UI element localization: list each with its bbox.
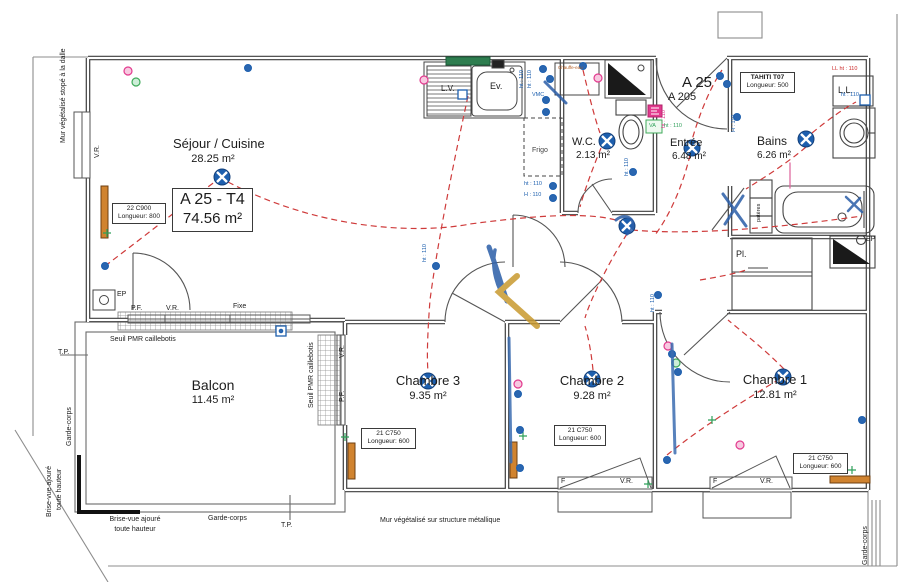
radiator-box-sejour: 22 C900 Longueur: 800 <box>112 203 166 224</box>
green-wall-bottom-note: Mur végétalisé sur structure métallique <box>380 517 500 525</box>
room-area-chambre1: 12.81 m² <box>740 389 810 401</box>
room-label-chambre2: Chambre 2 <box>557 374 627 388</box>
door-ref: A 205 <box>668 91 696 103</box>
radiator-box-bains: TAHITI T07 Longueur: 500 <box>740 72 795 93</box>
seuil-pmr-right-note: Seuil PMR caillebotis <box>308 342 316 408</box>
ht-note-green: ht : 110 <box>664 123 682 129</box>
sejour-ep-box <box>93 290 115 310</box>
balcony-caillebotis-hatch <box>118 312 340 425</box>
walls <box>88 58 868 490</box>
radiator-box-chambre3: 21 C750 Longueur: 600 <box>361 428 416 449</box>
tp-mark-left: T.P. <box>58 349 69 357</box>
fridge-label: Frigo <box>532 147 548 155</box>
radiator-box-chambre1: 21 C750 Longueur: 600 <box>793 453 848 474</box>
closet-label: Pl. <box>736 250 747 260</box>
privacy-screen-bottom-note-1: Brise-vue ajouré <box>85 516 185 524</box>
water-heater-label: Chauffe-eau <box>558 66 583 71</box>
ht-note: ht : 110 <box>624 158 630 176</box>
unit-area: 74.56 m² <box>175 210 250 229</box>
dishwasher-label: L.V. <box>441 85 455 94</box>
room-label-wc: W.C. <box>572 136 596 148</box>
windows-glazing <box>74 112 792 518</box>
ht-note: ht : 110 <box>524 181 542 187</box>
room-area-bains: 6.26 m² <box>757 150 791 161</box>
room-area-chambre3: 9.35 m² <box>393 390 463 402</box>
floor-plan: Séjour / Cuisine 28.25 m² W.C. 2.13 m² E… <box>0 0 911 582</box>
privacy-screen-left-note-2: toute hauteur <box>56 469 64 510</box>
ht-note: ht : 110 <box>841 92 859 98</box>
green-wall-left-note: Mur végétalisé stopé à la dalle <box>60 48 68 143</box>
wc-toilet <box>616 100 646 149</box>
kitchen-fixtures <box>424 57 651 176</box>
ceiling-light-icons <box>214 131 814 389</box>
seuil-pmr-top-note: Seuil PMR caillebotis <box>110 336 176 344</box>
room-label-sejour: Séjour / Cuisine <box>173 137 253 151</box>
room-area-wc: 2.13 m² <box>576 150 610 161</box>
guardrail-right-note: Garde-corps <box>862 526 870 565</box>
privacy-screen-left-note-1: Brise-vue ajouré <box>46 466 54 517</box>
guardrail-left-note: Garde-corps <box>66 407 74 446</box>
room-label-chambre3: Chambre 3 <box>393 374 463 388</box>
privacy-screen-bottom-note-2: toute hauteur <box>85 526 185 534</box>
vmc-note: VMC <box>532 92 544 98</box>
ht-note: ht : 110 <box>519 70 525 88</box>
radiator-box-chambre2: 21 C750 Longueur: 600 <box>554 425 606 446</box>
bathroom-fixtures <box>732 76 875 310</box>
window-vr-chambre1: V.R. <box>760 478 773 486</box>
room-label-bains: Bains <box>757 135 787 148</box>
room-label-balcon: Balcon <box>178 378 248 393</box>
room-area-chambre2: 9.28 m² <box>557 390 627 402</box>
window-vr-chambre2: V.R. <box>620 478 633 486</box>
room-area-balcon: 11.45 m² <box>178 394 248 406</box>
ep-label-sejour: EP <box>117 291 126 299</box>
window-f-chambre2: F <box>561 478 565 486</box>
unit-label-box: A 25 - T4 74.56 m² <box>172 188 253 232</box>
guardrail-bottom-note: Garde-corps <box>208 515 247 523</box>
window-pf-chambre3: P.F. <box>339 391 347 402</box>
room-area-entree: 6.48 m² <box>672 151 706 162</box>
window-vr-chambre3: V.R. <box>339 345 347 358</box>
window-f-chambre1: F <box>713 478 717 486</box>
ht-note: H : 110 <box>731 115 737 132</box>
switch-socket-icons <box>102 63 871 472</box>
ht-note: ht : 110 <box>650 294 656 312</box>
coat-hooks-label: patères <box>756 204 762 222</box>
room-label-entree: Entrée <box>670 137 702 149</box>
room-label-chambre1: Chambre 1 <box>740 373 810 387</box>
ht-note: H : 110 <box>524 192 541 198</box>
ht-note: ht : 110 <box>422 244 428 262</box>
ll-ht-note: LL ht : 110 <box>832 66 857 72</box>
balcony-outline <box>60 322 345 520</box>
ep-label-bains: EP <box>866 236 875 244</box>
apartment-number: A 25 <box>682 75 712 92</box>
unit-code: A 25 - T4 <box>175 190 250 210</box>
window-vr-left: V.R. <box>94 145 102 158</box>
window-fixe-sejour: Fixe <box>233 303 246 311</box>
tp-mark-bottom: T.P. <box>281 522 292 530</box>
ht-note: ht : 110 <box>527 70 533 88</box>
window-vr-sejour: V.R. <box>166 305 179 313</box>
window-pf-sejour: P.F. <box>131 305 142 313</box>
va-label: VA <box>649 123 656 129</box>
sink-label: Ev. <box>490 82 502 92</box>
room-area-sejour: 28.25 m² <box>173 153 253 165</box>
